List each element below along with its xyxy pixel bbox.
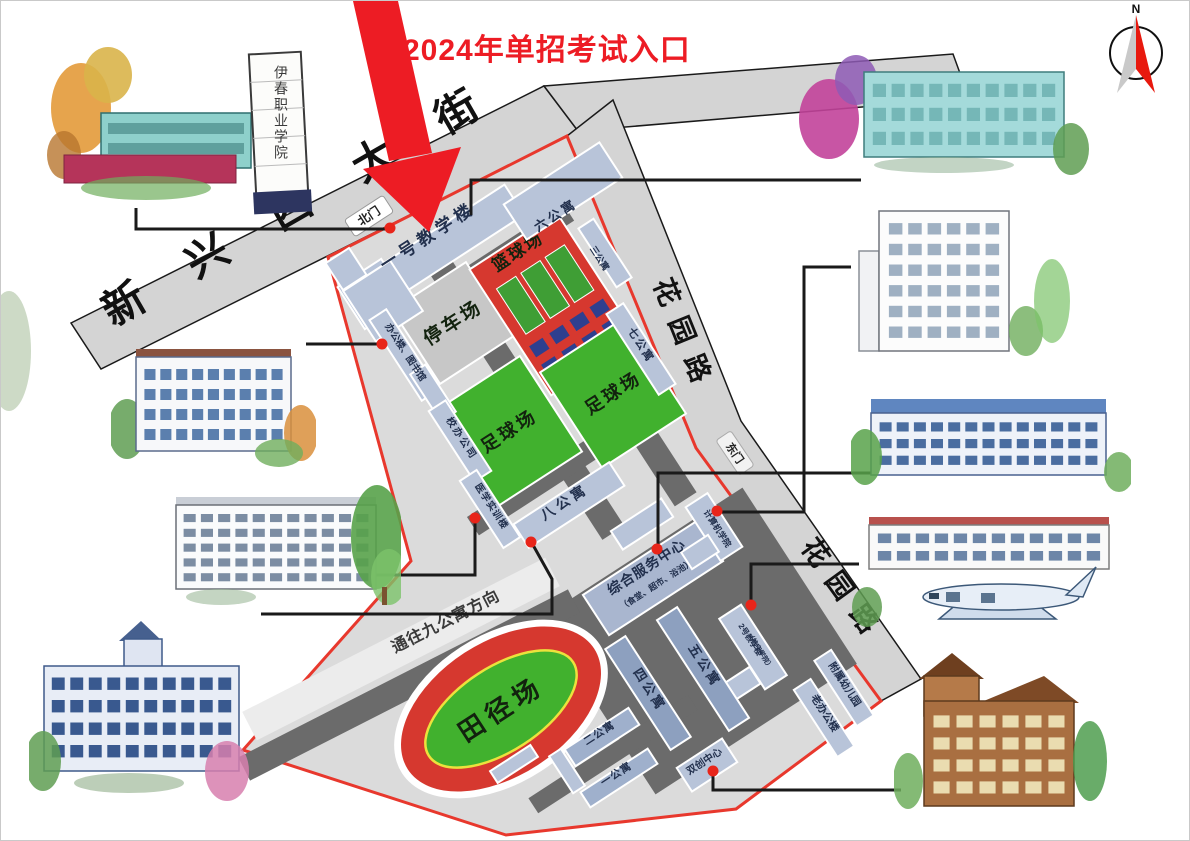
- dot-apt8: [526, 537, 537, 548]
- cockpit-window: [929, 593, 939, 599]
- airplane: [923, 567, 1096, 619]
- illustration-building-left3: [161, 469, 401, 607]
- dot-north-gate: [385, 223, 396, 234]
- tree: [1053, 123, 1089, 175]
- campus-map-page: 停车场 篮球场 足球场 足球场 田径场: [0, 0, 1190, 841]
- side-roof: [979, 676, 1079, 703]
- illustration-building-right2: [844, 191, 1074, 366]
- illustration-building-left2: [111, 321, 316, 471]
- dot-computer-college: [712, 506, 723, 517]
- bush: [255, 439, 303, 467]
- dot-teach2: [746, 600, 757, 611]
- building-body: [869, 525, 1109, 569]
- airplane-engine: [946, 592, 960, 602]
- illustration-building-right3: [851, 377, 1131, 495]
- bush: [186, 589, 256, 605]
- tree: [894, 753, 923, 809]
- tree: [852, 587, 882, 627]
- dot-office-library: [377, 339, 388, 350]
- autumn-tree: [84, 47, 132, 103]
- hedge: [74, 773, 184, 793]
- gate-sign-text: 伊春职业学院: [267, 65, 293, 189]
- window-band: [108, 123, 244, 134]
- tree-trunk: [382, 587, 387, 605]
- hedge: [874, 157, 1014, 173]
- dot-service-center: [652, 544, 663, 555]
- dot-medical: [470, 513, 481, 524]
- compass-needle-west: [1117, 15, 1136, 93]
- compass-needle-east: [1136, 15, 1155, 93]
- illustration-building-right4-airplane: [851, 497, 1131, 631]
- pink-tree: [205, 741, 249, 801]
- airplane-engine: [981, 593, 995, 603]
- illustration-building-left4: [29, 611, 264, 806]
- window-band: [108, 143, 244, 154]
- tree: [1034, 259, 1070, 343]
- dot-innovation-center: [708, 766, 719, 777]
- tree: [1104, 452, 1131, 492]
- compass: N: [1110, 2, 1162, 93]
- hedge: [81, 176, 211, 200]
- cornice: [176, 497, 376, 505]
- illustration-building-right5: [894, 641, 1109, 821]
- blue-roof: [871, 399, 1106, 413]
- airplane-tail: [1066, 567, 1096, 597]
- edge-tree: [1, 291, 31, 411]
- red-roofline: [869, 517, 1109, 525]
- illustration-building-right1: [794, 47, 1089, 179]
- tower-roof: [119, 621, 162, 641]
- page-title: 2024年单招考试入口: [403, 25, 691, 69]
- gable-roof: [919, 653, 984, 679]
- side-wing: [859, 251, 879, 351]
- compass-north-label: N: [1132, 2, 1141, 16]
- tree: [1073, 721, 1107, 801]
